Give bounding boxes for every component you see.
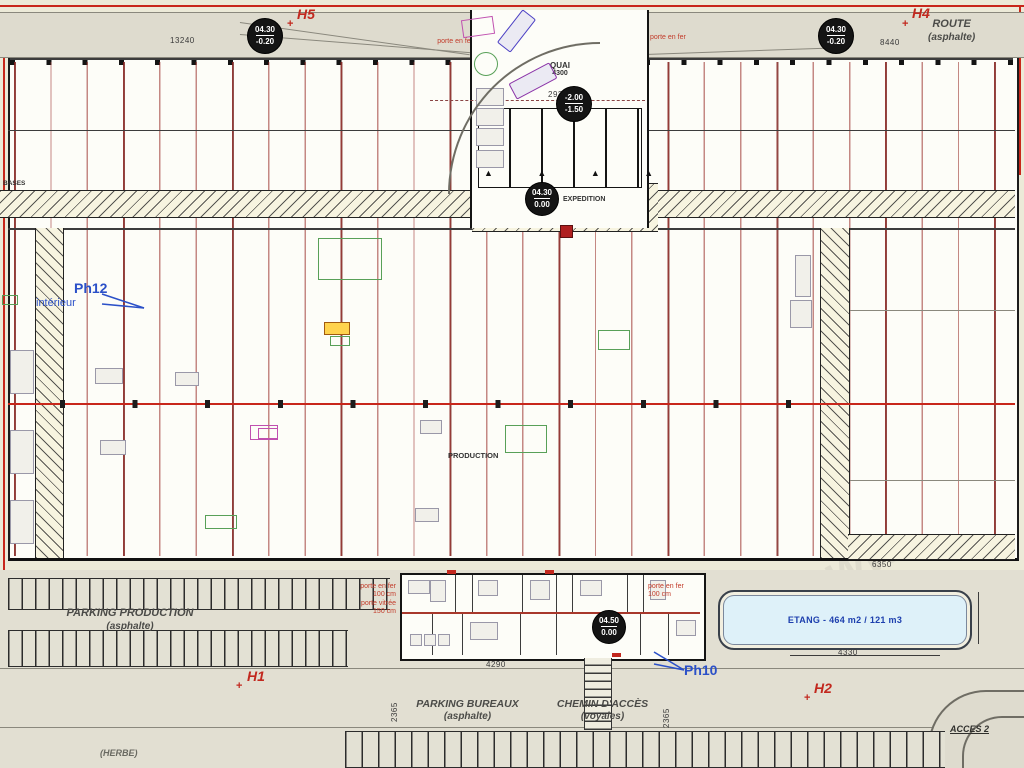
partition: [522, 575, 523, 613]
marker-h4: H4: [912, 5, 930, 21]
equipment-outline: [175, 372, 199, 386]
furniture: [408, 580, 430, 594]
furniture: [478, 580, 498, 596]
hatched-strip-left: [0, 190, 470, 218]
dim-route-left: 13240: [170, 36, 195, 45]
bureaux-axis: [402, 612, 700, 614]
furniture: [424, 634, 436, 646]
dock-room: [476, 150, 504, 168]
door-label: porte en fer 100 cm: [648, 583, 700, 600]
equipment-outline: [330, 336, 350, 346]
yard-line: [0, 727, 1024, 728]
level-value: -1.50: [565, 103, 583, 115]
equipment-outline: [205, 515, 237, 529]
level-marker-top-left: 04.30 -0.20: [247, 18, 283, 54]
dim-pond: 4330: [838, 648, 858, 657]
equipment-outline: [318, 238, 382, 280]
door-tick: [612, 653, 621, 657]
door-tick: [545, 570, 554, 574]
level-value: 0.00: [534, 198, 550, 210]
furniture: [470, 622, 498, 640]
dock-room: [476, 88, 504, 106]
ph12-arrow-icon: [100, 288, 146, 316]
dim-route-right: 8440: [880, 38, 900, 47]
building-top-edge: [10, 58, 470, 60]
zone-surface: (voyales): [540, 711, 665, 724]
marker-ph10: Ph10: [684, 662, 717, 678]
furniture: [580, 580, 602, 596]
frame-line-top: [0, 5, 1024, 7]
level-marker-entry: 04.30 0.00: [525, 182, 559, 216]
door-type: porte vitrée: [330, 600, 396, 608]
route-label: ROUTE (asphalte): [928, 18, 975, 44]
marker-h2: H2: [814, 680, 832, 696]
furniture: [676, 620, 696, 636]
herbe-label: (HERBE): [100, 748, 138, 758]
level-value: 04.50: [599, 616, 619, 626]
pond-label: ETANG - 464 m2 / 121 m3: [788, 615, 902, 625]
left-room: [10, 500, 34, 544]
red-node: [560, 225, 573, 238]
partition: [462, 614, 463, 655]
dim-line-vertical: [978, 592, 979, 644]
survey-cross-icon: +: [236, 680, 242, 692]
equipment-outline: [95, 368, 123, 384]
door-label-top-left: porte en fer: [425, 38, 473, 46]
door-size: 150 cm: [330, 608, 396, 616]
dock-dashed-line: [430, 100, 645, 101]
hatched-wall-right: [820, 228, 850, 558]
partition: [627, 575, 628, 613]
door-size: 100 cm: [330, 591, 396, 599]
level-marker-bureaux: 04.50 0.00: [592, 610, 626, 644]
furniture: [410, 634, 422, 646]
marker-ph12-sub: intérieur: [36, 297, 76, 309]
hatched-wall-left: [35, 228, 64, 558]
door-tick: [447, 570, 456, 574]
dim-vertical-left: 2365: [390, 702, 399, 722]
dim-bureaux: 4290: [486, 660, 506, 669]
pond: ETANG - 464 m2 / 121 m3: [718, 590, 972, 650]
dim-right-wing: 6350: [872, 560, 892, 569]
parking-bureaux-label: PARKING BUREAUX (asphalte): [400, 698, 535, 724]
partition: [556, 614, 557, 655]
partition: [668, 614, 669, 655]
parking-row: [8, 630, 348, 667]
left-room: [10, 430, 34, 474]
dim-line: [790, 655, 940, 656]
hatched-strip-right: [645, 190, 1015, 218]
survey-cross-icon: +: [287, 18, 293, 30]
partition: [472, 575, 473, 613]
yard-line: [0, 668, 1024, 669]
partition: [572, 575, 573, 613]
door-type: porte en fer: [648, 583, 700, 591]
equipment-outline: [100, 440, 126, 455]
zone-name: PARKING PRODUCTION: [30, 607, 230, 621]
dock-arrows: ▲ ▲ ▲ ▲: [484, 168, 674, 178]
marker-h5: H5: [297, 6, 315, 22]
survey-cross-icon: +: [804, 692, 810, 704]
zone-name: CHEMIN D'ACCÈS: [540, 698, 665, 711]
zone-surface: (asphalte): [30, 621, 230, 634]
furniture: [430, 580, 446, 602]
left-room: [10, 350, 34, 394]
partition: [520, 614, 521, 655]
partition: [556, 575, 557, 613]
equipment-outline: [505, 425, 547, 453]
site-plan-canvas: www www www 13240 8440 ROUTE (asphalte) …: [0, 0, 1024, 768]
level-value: 0.00: [601, 626, 617, 638]
level-value: -0.20: [256, 35, 274, 47]
equipment-outline: [420, 420, 442, 434]
expedition-label: EXPEDITION: [563, 196, 605, 203]
parking-row-bottom: [345, 731, 945, 768]
route-surface: (asphalte): [928, 32, 975, 45]
hatched-wall-bottom-right: [848, 534, 1015, 560]
parking-production-label: PARKING PRODUCTION (asphalte): [30, 607, 230, 633]
equipment-highlight: [324, 322, 350, 335]
acces2-label: ACCES 2: [950, 724, 989, 734]
zone-surface: (asphalte): [400, 711, 535, 724]
interior-line: [848, 480, 1015, 481]
furniture: [530, 580, 550, 600]
furniture: [438, 634, 450, 646]
equipment-outline: [795, 255, 811, 297]
partition: [455, 575, 456, 613]
level-value: -0.20: [827, 35, 845, 47]
partition: [640, 614, 641, 655]
partition: [643, 575, 644, 613]
door-label-top-right: porte en fer: [650, 34, 698, 42]
zone-name: PARKING BUREAUX: [400, 698, 535, 711]
door-type: porte en fer: [330, 583, 396, 591]
route-name: ROUTE: [928, 18, 975, 32]
equipment-outline: [258, 428, 278, 439]
dock-room: [476, 108, 504, 126]
level-marker-top-right: 04.30 -0.20: [818, 18, 854, 54]
interior-line: [645, 130, 1015, 131]
level-value: -2.00: [565, 93, 583, 103]
left-detail: [2, 295, 18, 305]
level-marker-dock: -2.00 -1.50: [556, 86, 592, 122]
level-value: 04.30: [532, 188, 552, 198]
marker-h1: H1: [247, 668, 265, 684]
interior-line: [848, 310, 1015, 311]
production-label: PRODUCTION: [448, 452, 498, 460]
interior-line: [8, 130, 470, 131]
dock-room: [476, 128, 504, 146]
red-axis-line: [8, 403, 1015, 405]
door-label: porte en fer 100 cm porte vitrée 150 cm: [330, 583, 396, 617]
level-value: 04.30: [255, 25, 275, 35]
survey-cross-icon: +: [902, 18, 908, 30]
turn-radius-mark: [474, 52, 498, 76]
level-value: 04.30: [826, 25, 846, 35]
equipment-outline: [790, 300, 812, 328]
door-size: 100 cm: [648, 591, 700, 599]
building-top-edge: [645, 58, 1013, 60]
bases-label: BASES: [3, 181, 25, 188]
equipment-outline: [598, 330, 630, 350]
chemin-acces-label: CHEMIN D'ACCÈS (voyales): [540, 698, 665, 724]
equipment-outline: [415, 508, 439, 522]
